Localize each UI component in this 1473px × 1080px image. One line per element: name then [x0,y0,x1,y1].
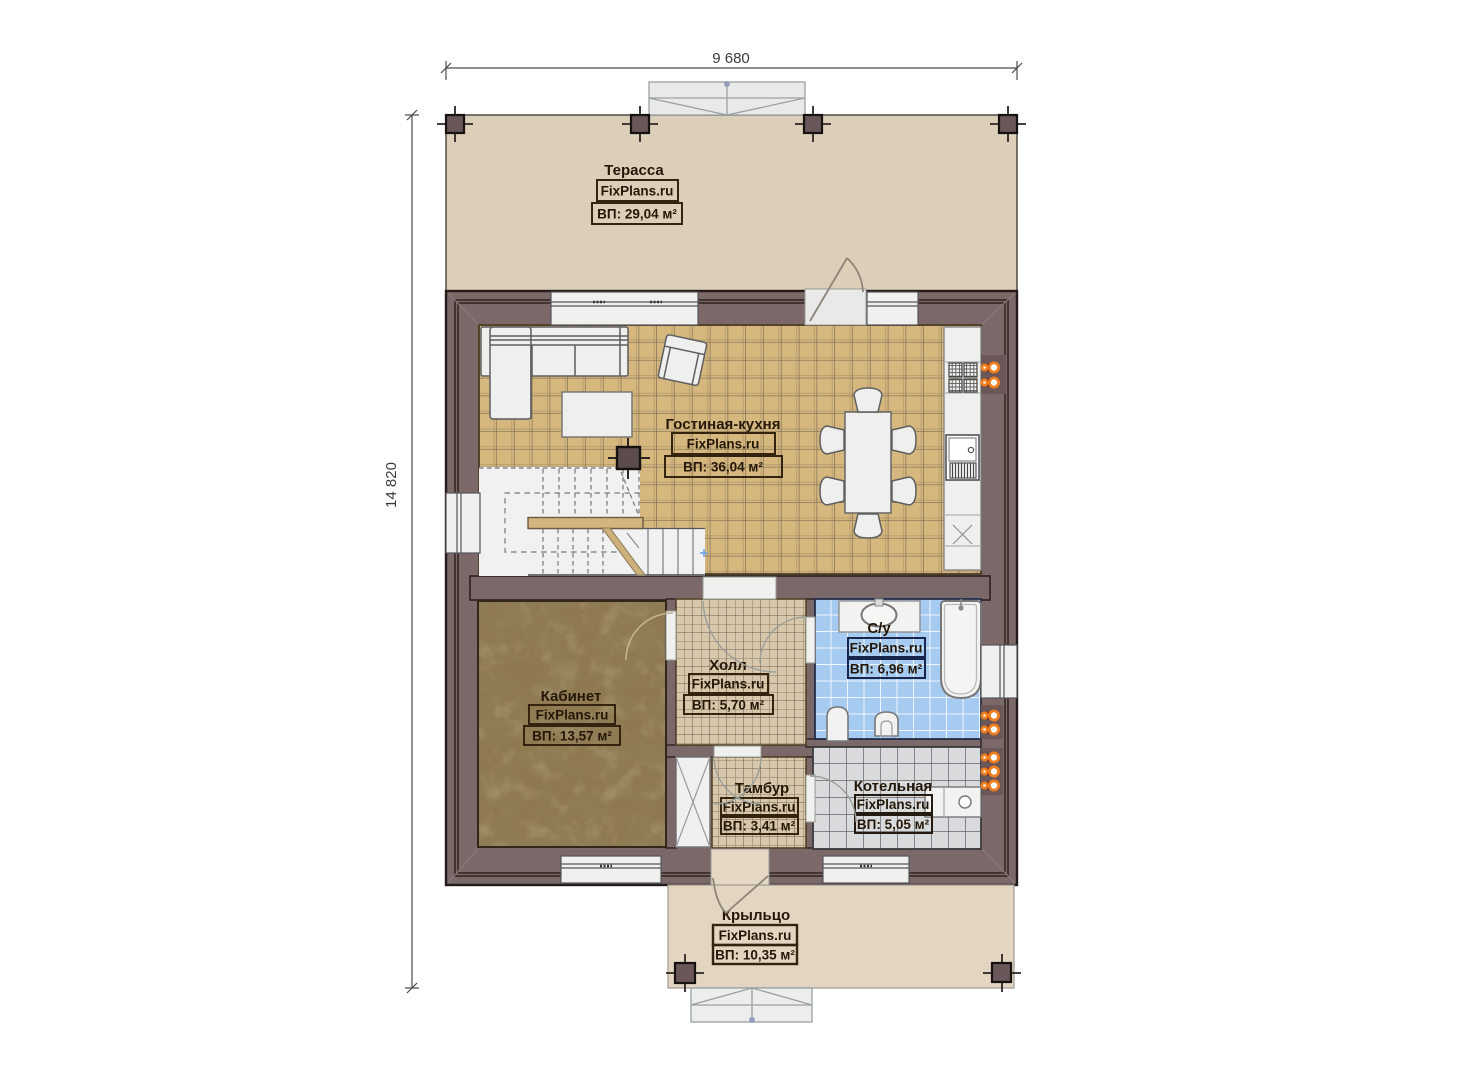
svg-text:FixPlans.ru: FixPlans.ru [536,708,609,723]
svg-text:ВП: 5,05 м²: ВП: 5,05 м² [857,817,930,832]
svg-text:9 680: 9 680 [712,50,750,67]
svg-text:Котельная: Котельная [854,778,933,795]
svg-text:FixPlans.ru: FixPlans.ru [857,797,930,812]
svg-text:14 820: 14 820 [383,462,400,508]
svg-text:ВП: 13,57 м²: ВП: 13,57 м² [532,729,612,744]
svg-text:FixPlans.ru: FixPlans.ru [850,641,923,656]
svg-text:ВП: 6,96 м²: ВП: 6,96 м² [850,662,923,677]
svg-text:FixPlans.ru: FixPlans.ru [601,184,674,199]
svg-text:ВП: 10,35 м²: ВП: 10,35 м² [715,948,795,963]
svg-text:Терасса: Терасса [604,162,664,179]
svg-text:С/у: С/у [867,620,891,637]
svg-text:Кабинет: Кабинет [541,688,602,705]
svg-text:FixPlans.ru: FixPlans.ru [687,437,760,452]
svg-text:ВП: 5,70 м²: ВП: 5,70 м² [692,698,765,713]
svg-text:Холл: Холл [709,657,747,674]
svg-text:Гостиная-кухня: Гостиная-кухня [666,416,781,433]
svg-text:ВП: 3,41 м²: ВП: 3,41 м² [723,819,796,834]
svg-text:FixPlans.ru: FixPlans.ru [719,928,792,943]
svg-text:ВП: 29,04 м²: ВП: 29,04 м² [597,207,677,222]
svg-text:FixPlans.ru: FixPlans.ru [723,800,796,815]
svg-text:FixPlans.ru: FixPlans.ru [692,677,765,692]
svg-text:ВП: 36,04 м²: ВП: 36,04 м² [683,460,763,475]
svg-text:Крыльцо: Крыльцо [722,907,790,924]
